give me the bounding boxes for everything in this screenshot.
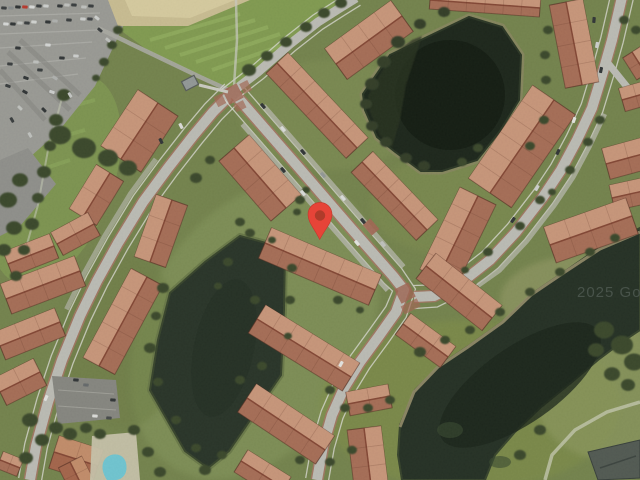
svg-text:2025 Go: 2025 Go — [577, 284, 640, 301]
